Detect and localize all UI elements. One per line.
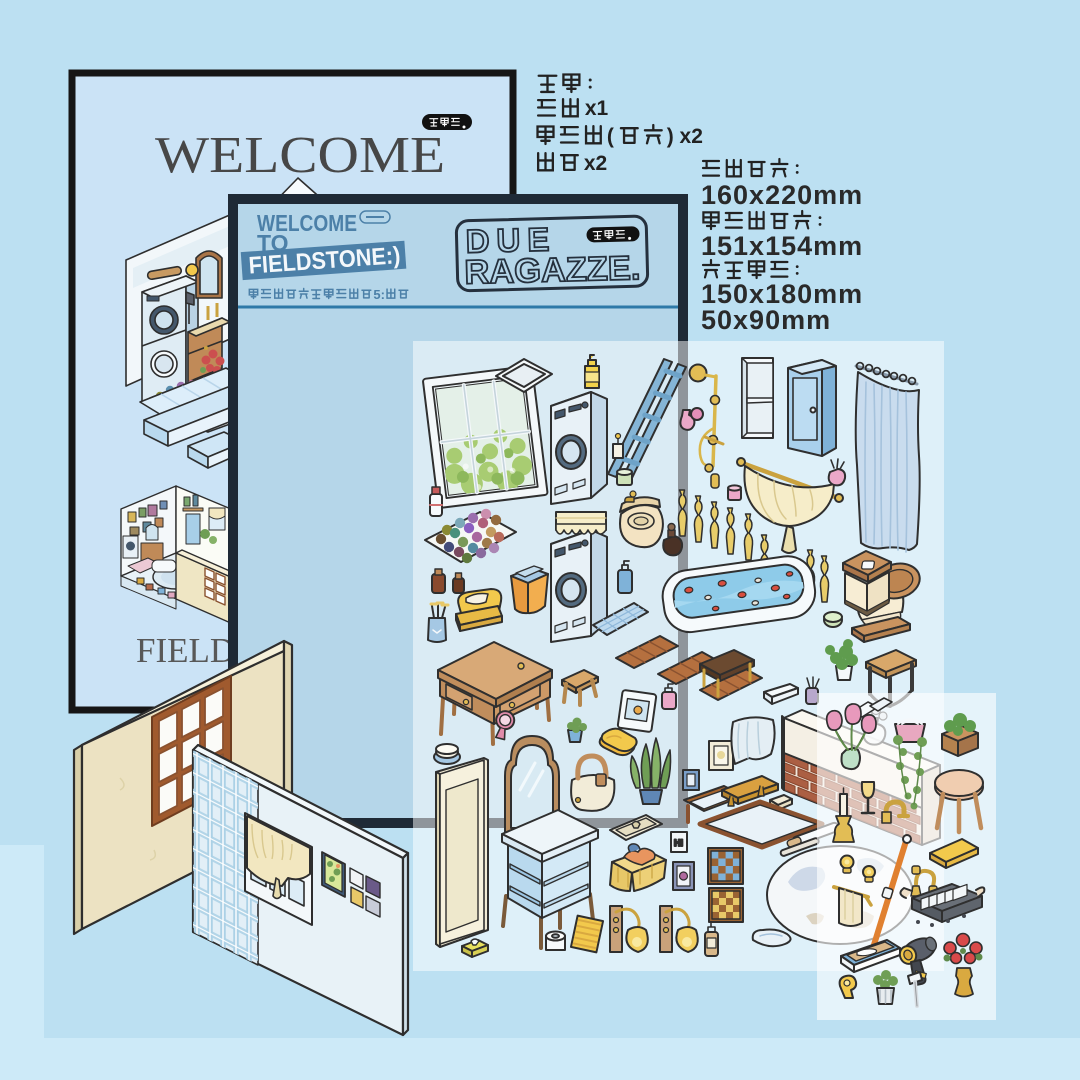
svg-text:(: ( xyxy=(607,125,614,148)
svg-text:50x90mm: 50x90mm xyxy=(701,305,831,335)
svg-text:160x220mm: 160x220mm xyxy=(701,180,863,210)
svg-text:151x154mm: 151x154mm xyxy=(701,231,863,261)
svg-text:Hi: Hi xyxy=(674,838,683,848)
svg-text:RAGAZZE.: RAGAZZE. xyxy=(464,249,641,292)
svg-text:x2: x2 xyxy=(584,152,607,175)
svg-text:x1: x1 xyxy=(585,97,609,120)
svg-text:FIELD: FIELD xyxy=(136,631,235,670)
svg-text:5:: 5: xyxy=(373,287,385,302)
svg-text:WELCOME: WELCOME xyxy=(155,127,445,184)
svg-text:) x2: ) x2 xyxy=(667,125,703,148)
